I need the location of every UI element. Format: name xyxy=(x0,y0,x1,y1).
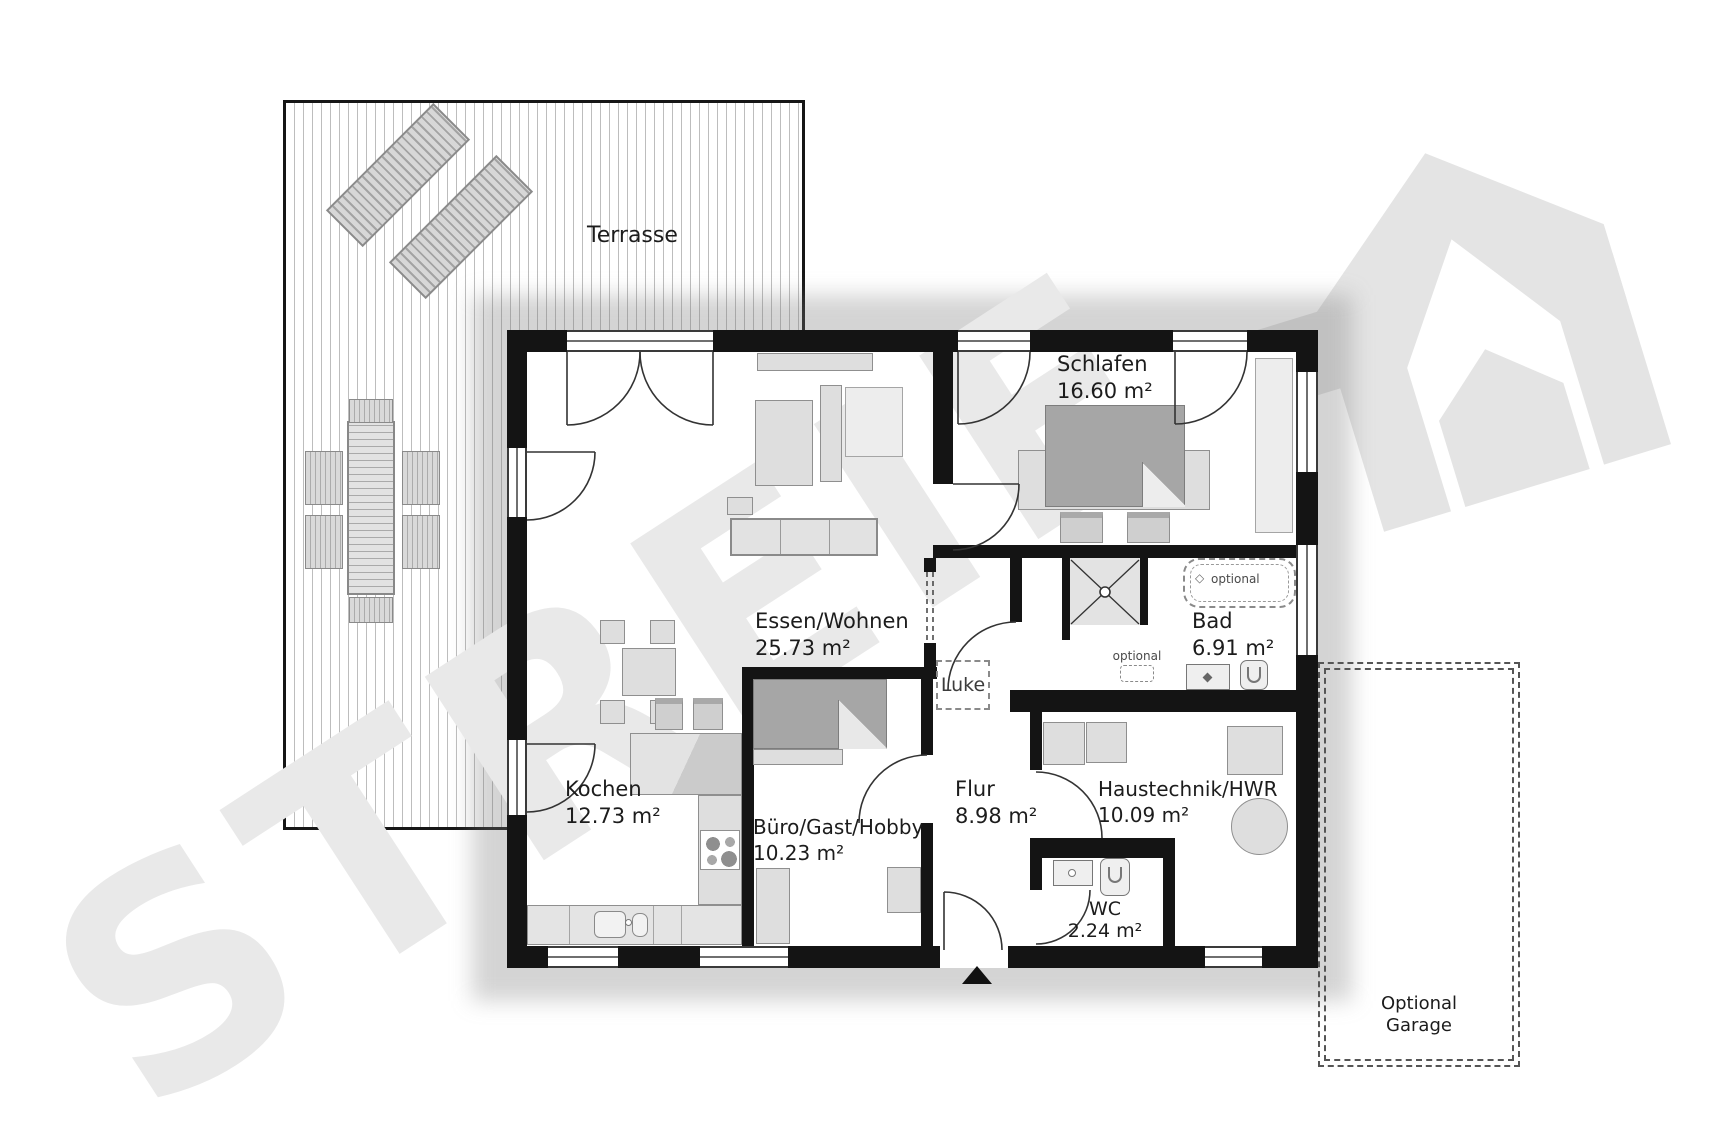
room-label-kochen: Kochen12.73 m² xyxy=(565,776,661,830)
room-label-wc: WC2.24 m² xyxy=(1055,898,1155,942)
room-label-buero: Büro/Gast/Hobby10.23 m² xyxy=(753,814,923,866)
terrace-label: Terrasse xyxy=(587,222,678,249)
room-label-flur: Flur8.98 m² xyxy=(955,776,1037,830)
door-swings-layer xyxy=(0,0,1720,1147)
room-label-haustechnik: Haustechnik/HWR10.09 m² xyxy=(1098,776,1277,828)
floor-plan-page: STREIF xyxy=(0,0,1720,1147)
room-label-schlafen: Schlafen16.60 m² xyxy=(1057,351,1153,405)
optional-door-icon xyxy=(1120,665,1154,682)
room-label-bad: Bad6.91 m² xyxy=(1192,608,1274,662)
attic-hatch: Luke xyxy=(936,660,990,710)
optional-garage-label: Optional Garage xyxy=(1318,993,1520,1037)
attic-hatch-label: Luke xyxy=(941,674,985,696)
entrance-arrow-icon xyxy=(962,966,992,984)
room-label-essen: Essen/Wohnen25.73 m² xyxy=(755,608,909,662)
optional-door: optional xyxy=(1106,645,1168,679)
